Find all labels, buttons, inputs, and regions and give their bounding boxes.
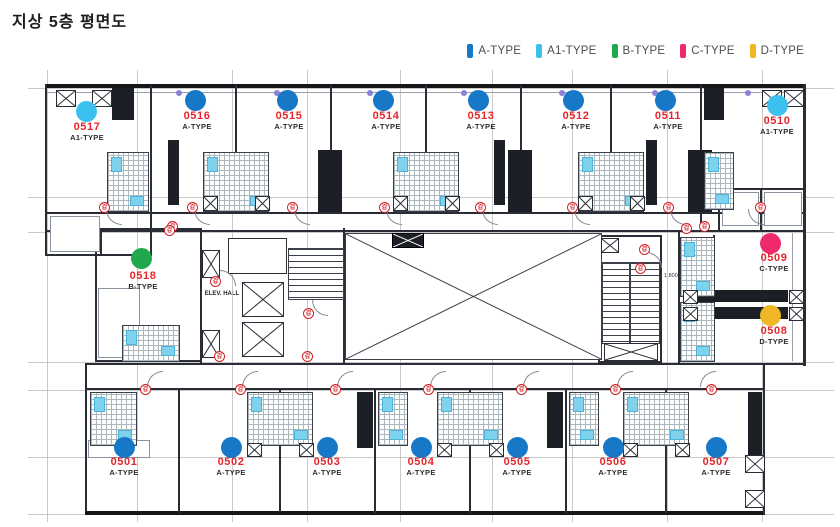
x-cross-icon <box>446 197 459 210</box>
shaft-box <box>299 443 314 457</box>
wall-segment <box>660 235 662 363</box>
unit-number: 0505 <box>480 456 554 468</box>
service-shaft <box>508 150 532 212</box>
bath-fixture <box>627 397 638 412</box>
comm-room <box>228 238 287 274</box>
unit-dot-0513 <box>468 90 489 111</box>
unit-type: B-TYPE <box>106 282 180 291</box>
bathroom-tiles <box>107 152 149 212</box>
unit-dot-0505 <box>507 437 528 458</box>
unit-type: A-TYPE <box>194 468 268 477</box>
unit-dot-0501 <box>114 437 135 458</box>
bedroom-0517 <box>50 216 100 252</box>
unit-dot-0508 <box>760 305 781 326</box>
x-cross-icon <box>93 91 111 106</box>
floor-plan: 통신실 ELEV. HALL 1,800 갑갑갑갑갑갑갑갑갑갑갑갑갑갑갑갑갑갑갑… <box>0 0 840 527</box>
unit-type: C-TYPE <box>737 264 811 273</box>
wall-segment <box>100 230 102 254</box>
unit-label-0517: 0517A1-TYPE <box>50 121 124 142</box>
bath-fixture <box>670 430 684 440</box>
unit-number: 0502 <box>194 456 268 468</box>
wall-segment <box>85 363 765 365</box>
door-swing-arc <box>106 209 122 225</box>
shaft-box <box>623 443 638 457</box>
fire-door-marker: 갑 <box>610 384 621 395</box>
bathroom-tiles <box>569 392 599 446</box>
unit-type: A-TYPE <box>480 468 554 477</box>
bath-fixture <box>696 281 710 291</box>
bath-fixture <box>251 397 262 412</box>
unit-number: 0513 <box>444 110 518 122</box>
service-shaft <box>318 150 342 212</box>
bath-fixture <box>382 397 393 412</box>
unit-number: 0511 <box>631 110 705 122</box>
x-cross-icon <box>605 344 657 360</box>
unit-dot-0503 <box>317 437 338 458</box>
bathroom-tiles <box>247 392 313 446</box>
fire-door-marker: 갑 <box>303 308 314 319</box>
bath-fixture <box>126 330 137 345</box>
unit-dot-0507 <box>706 437 727 458</box>
unit-number: 0512 <box>539 110 613 122</box>
bath-fixture <box>94 397 105 412</box>
fire-door-marker: 갑 <box>516 384 527 395</box>
x-cross-icon <box>243 283 283 316</box>
elevator-car <box>242 322 284 357</box>
service-shaft <box>112 88 134 120</box>
service-shaft <box>748 392 762 462</box>
wall-segment <box>85 511 765 515</box>
door-swing-arc <box>194 209 210 225</box>
unit-type: A-TYPE <box>87 468 161 477</box>
unit-label-0512: 0512A-TYPE <box>539 110 613 131</box>
vent-dot-icon <box>745 90 751 96</box>
bath-fixture <box>441 397 452 412</box>
wall-segment <box>95 228 202 230</box>
vent-dot-icon <box>461 90 467 96</box>
unit-type: A-TYPE <box>290 468 364 477</box>
unit-label-0509: 0509C-TYPE <box>737 252 811 273</box>
vent-dot-icon <box>176 90 182 96</box>
unit-type: A-TYPE <box>384 468 458 477</box>
fire-door-marker: 갑 <box>187 202 198 213</box>
bath-fixture <box>130 196 144 206</box>
fire-door-marker: 갑 <box>635 263 646 274</box>
bathroom-tiles <box>437 392 503 446</box>
x-cross-icon <box>248 444 261 456</box>
unit-type: A-TYPE <box>539 122 613 131</box>
bath-fixture <box>684 242 695 257</box>
bathroom-tiles <box>122 325 180 362</box>
stair-left <box>288 248 344 300</box>
service-shaft <box>494 140 505 205</box>
shaft-box <box>789 307 804 321</box>
door-swing-arc <box>482 209 498 225</box>
shaft-box <box>683 307 698 321</box>
unit-number: 0515 <box>252 110 326 122</box>
x-cross-icon <box>57 91 75 106</box>
unit-type: A1-TYPE <box>50 133 124 142</box>
unit-dot-0506 <box>603 437 624 458</box>
unit-type: A-TYPE <box>349 122 423 131</box>
unit-label-0508: 0508D-TYPE <box>737 325 811 346</box>
unit-label-0506: 0506A-TYPE <box>576 456 650 477</box>
service-shaft <box>357 392 373 448</box>
elev-hall-label: ELEV. HALL <box>200 291 244 297</box>
unit-label-0502: 0502A-TYPE <box>194 456 268 477</box>
x-cross-icon <box>790 308 803 320</box>
fire-door-marker: 갑 <box>755 202 766 213</box>
central-void <box>345 233 602 360</box>
unit-number: 0518 <box>106 270 180 282</box>
x-cross-icon <box>631 197 644 210</box>
wall-segment <box>565 390 567 513</box>
unit-label-0507: 0507A-TYPE <box>679 456 753 477</box>
bath-fixture <box>161 346 175 356</box>
fire-door-marker: 갑 <box>330 384 341 395</box>
fire-door-marker: 갑 <box>214 351 225 362</box>
unit-dot-0509 <box>760 233 781 254</box>
unit-type: A-TYPE <box>444 122 518 131</box>
x-cross-icon <box>602 239 618 252</box>
unit-dot-0518 <box>131 248 152 269</box>
fire-door-marker: 갑 <box>140 384 151 395</box>
bathroom-tiles <box>704 152 734 210</box>
fire-door-marker: 갑 <box>379 202 390 213</box>
unit-label-0505: 0505A-TYPE <box>480 456 554 477</box>
service-shaft <box>168 140 179 205</box>
unit-dot-0516 <box>185 90 206 111</box>
unit-number: 0509 <box>737 252 811 264</box>
unit-type: D-TYPE <box>737 337 811 346</box>
fire-door-marker: 갑 <box>706 384 717 395</box>
bathroom-tiles <box>378 392 408 446</box>
bath-fixture <box>715 194 729 204</box>
shaft-box <box>630 196 645 211</box>
unit-dot-0502 <box>221 437 242 458</box>
service-shaft <box>704 88 724 120</box>
room-0510 <box>764 192 802 226</box>
bath-fixture <box>696 346 710 356</box>
fire-door-marker: 갑 <box>681 223 692 234</box>
wall-segment <box>45 212 805 214</box>
unit-type: A-TYPE <box>631 122 705 131</box>
grid-line-vertical <box>47 70 48 522</box>
unit-label-0511: 0511A-TYPE <box>631 110 705 131</box>
shaft-box <box>601 238 619 253</box>
bath-fixture <box>111 157 122 172</box>
shaft-box <box>437 443 452 457</box>
unit-label-0510: 0510A1-TYPE <box>740 115 814 136</box>
unit-number: 0517 <box>50 121 124 133</box>
wall-segment <box>85 363 87 515</box>
bath-fixture <box>207 157 218 172</box>
door-swing-arc <box>147 371 163 387</box>
door-swing-arc <box>617 371 633 387</box>
shaft-box <box>675 443 690 457</box>
shaft-box <box>683 290 698 304</box>
shaft-box <box>247 443 262 457</box>
x-cross-icon <box>746 491 764 507</box>
void-hatch-box <box>392 233 424 248</box>
fire-door-marker: 갑 <box>235 384 246 395</box>
unit-number: 0501 <box>87 456 161 468</box>
unit-dot-0512 <box>563 90 584 111</box>
bath-fixture <box>484 430 498 440</box>
fire-door-marker: 갑 <box>423 384 434 395</box>
unit-type: A1-TYPE <box>740 127 814 136</box>
unit-dot-0510 <box>767 95 788 116</box>
unit-type: A-TYPE <box>576 468 650 477</box>
fire-door-marker: 갑 <box>567 202 578 213</box>
shaft-box <box>445 196 460 211</box>
fire-door-marker: 갑 <box>302 351 313 362</box>
bath-fixture <box>294 430 308 440</box>
unit-label-0515: 0515A-TYPE <box>252 110 326 131</box>
x-cross-icon <box>243 323 283 356</box>
unit-label-0504: 0504A-TYPE <box>384 456 458 477</box>
x-cross-icon <box>256 197 269 210</box>
unit-label-0503: 0503A-TYPE <box>290 456 364 477</box>
shaft-box <box>745 490 765 508</box>
unit-number: 0507 <box>679 456 753 468</box>
shaft-box <box>255 196 270 211</box>
fire-door-marker: 갑 <box>699 221 710 232</box>
bath-fixture <box>582 157 593 172</box>
grid-line-vertical <box>667 70 668 522</box>
door-swing-arc <box>337 371 353 387</box>
unit-dot-0517 <box>76 101 97 122</box>
door-swing-arc <box>294 209 310 225</box>
x-cross-icon <box>438 444 451 456</box>
fire-door-marker: 갑 <box>475 202 486 213</box>
service-shaft <box>646 140 657 205</box>
unit-number: 0504 <box>384 456 458 468</box>
unit-number: 0506 <box>576 456 650 468</box>
wall-segment <box>374 390 376 513</box>
fire-door-marker: 갑 <box>639 244 650 255</box>
unit-number: 0510 <box>740 115 814 127</box>
wall-segment <box>598 235 662 237</box>
door-swing-arc <box>242 371 258 387</box>
elevator-car <box>604 343 658 361</box>
door-swing-arc <box>523 371 539 387</box>
service-shaft <box>547 392 563 448</box>
fire-door-marker: 갑 <box>99 202 110 213</box>
shaft-box <box>489 443 504 457</box>
door-swing-arc <box>430 371 446 387</box>
wall-segment <box>178 390 180 513</box>
bath-fixture <box>580 430 594 440</box>
elevator-car <box>242 282 284 317</box>
door-swing-arc <box>574 209 590 225</box>
x-cross-icon <box>203 251 219 277</box>
stair-right <box>602 262 660 344</box>
door-swing-arc <box>386 209 402 225</box>
unit-label-0513: 0513A-TYPE <box>444 110 518 131</box>
vent-dot-icon <box>367 90 373 96</box>
bathroom-tiles <box>680 237 715 297</box>
x-cross-icon <box>684 308 697 320</box>
unit-dot-0514 <box>373 90 394 111</box>
fire-door-marker: 갑 <box>164 225 175 236</box>
unit-dot-0511 <box>655 90 676 111</box>
x-cross-icon <box>490 444 503 456</box>
bath-fixture <box>573 397 584 412</box>
door-swing-arc <box>312 300 328 316</box>
bath-fixture <box>397 157 408 172</box>
shaft-box <box>789 290 804 304</box>
shaft-box <box>56 90 76 107</box>
x-cross-icon <box>624 444 637 456</box>
x-cross-icon <box>300 444 313 456</box>
unit-dot-0515 <box>277 90 298 111</box>
unit-type: A-TYPE <box>679 468 753 477</box>
unit-label-0516: 0516A-TYPE <box>160 110 234 131</box>
unit-number: 0516 <box>160 110 234 122</box>
fire-door-marker: 갑 <box>287 202 298 213</box>
x-cross-icon <box>676 444 689 456</box>
fire-door-marker: 갑 <box>663 202 674 213</box>
unit-number: 0503 <box>290 456 364 468</box>
fire-door-marker: 갑 <box>210 276 221 287</box>
shaft-box <box>202 250 220 278</box>
unit-number: 0508 <box>737 325 811 337</box>
x-cross-icon <box>684 291 697 303</box>
stair-divider <box>629 263 631 343</box>
wall-segment <box>150 85 152 256</box>
bath-fixture <box>389 430 403 440</box>
unit-label-0518: 0518B-TYPE <box>106 270 180 291</box>
bath-fixture <box>708 157 719 172</box>
unit-label-0514: 0514A-TYPE <box>349 110 423 131</box>
x-cross-icon <box>790 291 803 303</box>
unit-dot-0504 <box>411 437 432 458</box>
unit-number: 0514 <box>349 110 423 122</box>
unit-label-0501: 0501A-TYPE <box>87 456 161 477</box>
unit-type: A-TYPE <box>160 122 234 131</box>
x-cross-icon <box>393 234 423 247</box>
void-cross-icon <box>346 234 601 359</box>
unit-type: A-TYPE <box>252 122 326 131</box>
bathroom-tiles <box>623 392 689 446</box>
